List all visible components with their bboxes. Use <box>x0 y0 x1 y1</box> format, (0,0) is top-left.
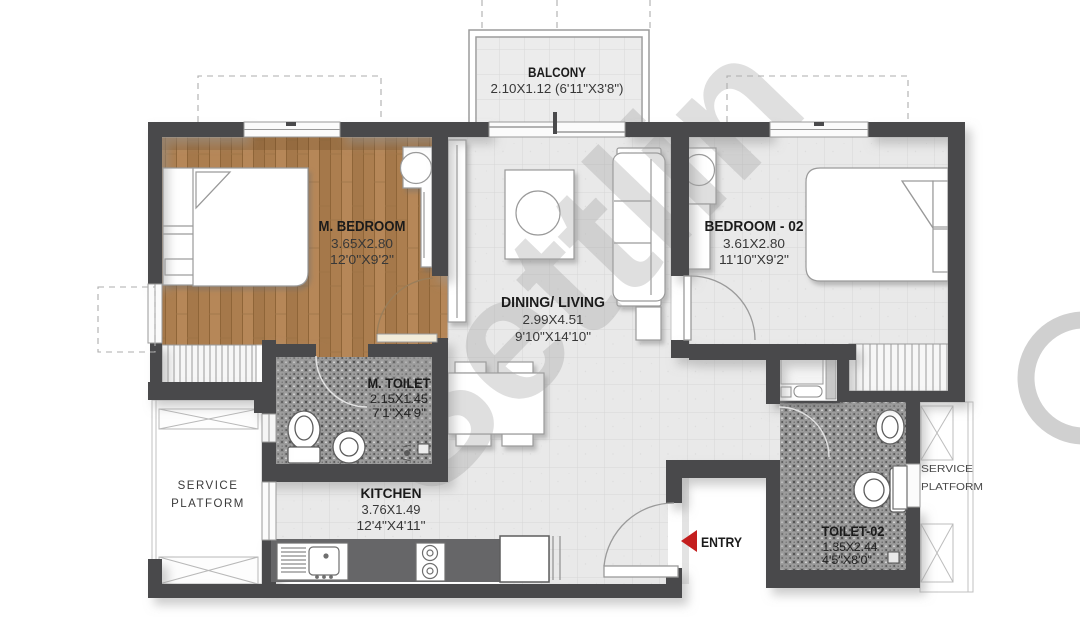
svg-text:11'10"X9'2": 11'10"X9'2" <box>719 252 789 267</box>
svg-text:M. BEDROOM: M. BEDROOM <box>319 218 406 235</box>
svg-text:PLATFORM: PLATFORM <box>921 481 983 493</box>
svg-text:1.35X2.44: 1.35X2.44 <box>823 542 879 554</box>
svg-text:TOILET-02: TOILET-02 <box>822 524 885 539</box>
svg-text:12'0"X9'2": 12'0"X9'2" <box>330 252 394 267</box>
svg-text:9'10"X14'10": 9'10"X14'10" <box>515 329 591 344</box>
svg-text:4'5"X8'0": 4'5"X8'0" <box>822 555 872 567</box>
svg-text:12'4"X4'11": 12'4"X4'11" <box>357 519 426 533</box>
svg-text:BALCONY: BALCONY <box>528 65 586 80</box>
svg-text:3.76X1.49: 3.76X1.49 <box>362 503 421 517</box>
svg-text:KITCHEN: KITCHEN <box>361 485 422 501</box>
svg-text:DINING/ LIVING: DINING/ LIVING <box>501 294 605 311</box>
svg-text:2.15X1.45: 2.15X1.45 <box>370 392 428 406</box>
svg-text:ENTRY: ENTRY <box>701 534 743 550</box>
svg-text:2.10X1.12 (6'11"X3'8"): 2.10X1.12 (6'11"X3'8") <box>491 82 624 96</box>
svg-text:2.99X4.51: 2.99X4.51 <box>523 312 584 327</box>
svg-text:3.61X2.80: 3.61X2.80 <box>723 236 785 251</box>
svg-text:PLATFORM: PLATFORM <box>171 498 245 510</box>
svg-text:3.65X2.80: 3.65X2.80 <box>331 236 393 251</box>
svg-text:M. TOILET: M. TOILET <box>368 376 432 391</box>
svg-text:SERVICE: SERVICE <box>178 480 239 492</box>
svg-text:BEDROOM - 02: BEDROOM - 02 <box>705 218 804 235</box>
svg-text:SERVICE: SERVICE <box>921 463 973 475</box>
svg-text:7'1"X4'9": 7'1"X4'9" <box>372 406 426 420</box>
